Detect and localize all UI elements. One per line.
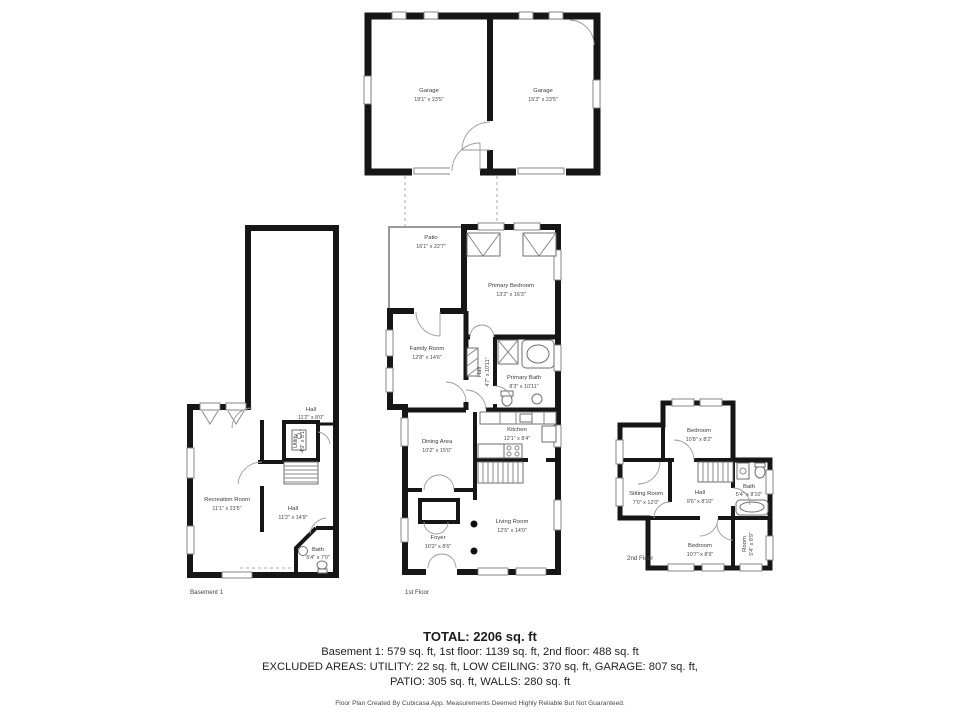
fridge-icon: [542, 426, 556, 442]
basement-title: Basement 1: [190, 589, 224, 596]
toilet-icon: [317, 561, 327, 569]
room-dims: 12'5" x 14'0": [497, 528, 527, 534]
excluded-areas-line2: PATIO: 305 sq. ft, WALLS: 280 sq. ft: [0, 675, 960, 690]
second-floor-stairs: [698, 462, 733, 482]
second-floor-title: 2nd Floor: [627, 555, 653, 562]
area-summary: TOTAL: 2206 sq. ft Basement 1: 579 sq. f…: [0, 629, 960, 707]
room-dims: 12'8" x 14'6": [412, 355, 442, 361]
excluded-areas-line1: EXCLUDED AREAS: UTILITY: 22 sq. ft, LOW …: [0, 660, 960, 675]
room-name: Hall: [306, 407, 316, 413]
stove-icon: [504, 444, 522, 458]
room-dims: 19'1" x 23'5": [414, 97, 444, 103]
disclaimer-text: Floor Plan Created By Cubicasa App. Meas…: [0, 700, 960, 707]
floor-areas: Basement 1: 579 sq. ft, 1st floor: 1139 …: [0, 645, 960, 660]
room-dims: 10'2" x 15'0": [422, 448, 452, 454]
front-entry-opening: [426, 568, 457, 577]
room-name: Utility: [293, 434, 299, 448]
second-floor-plan: Bedroom 10'8" x 8'2" Sitting Room 7'0" x…: [616, 399, 773, 571]
room-dims: 10'7" x 8'9": [687, 552, 714, 558]
room-name: Patio: [424, 235, 438, 241]
room-name: Bedroom: [687, 428, 711, 434]
room-name: Dining Area: [422, 439, 453, 445]
first-floor-title: 1st Floor: [405, 589, 429, 596]
room-dims: 9'6" x 8'10": [687, 499, 714, 505]
room-dims: 10'8" x 8'2": [686, 437, 713, 443]
room-name: Room: [742, 536, 748, 552]
toilet-icon: [755, 466, 765, 478]
total-area: TOTAL: 2206 sq. ft: [0, 629, 960, 645]
room-dims: 5'4" x 8'10": [736, 492, 763, 498]
room-name: Hall: [477, 367, 483, 377]
room-name: Recreation Room: [204, 497, 250, 503]
room-dims: 12'1" x 8'4": [504, 436, 531, 442]
room-name: Bath: [743, 484, 755, 490]
room-name: Garage: [533, 88, 553, 94]
room-name: Kitchen: [507, 427, 527, 433]
room-name: Primary Bedroom: [488, 283, 534, 289]
room-name: Hall: [695, 490, 705, 496]
room-dims: 8'3" x 10'11": [509, 384, 538, 390]
room-dims: 11'2" x 8'0": [298, 415, 324, 421]
room-name: Garage: [419, 88, 439, 94]
room-dims: 11'1" x 23'5": [212, 506, 241, 512]
room-dims: 10'2" x 8'6": [425, 544, 452, 550]
floor-plan-page: Garage 19'1" x 23'5" Garage 15'3" x 23'5…: [0, 0, 960, 720]
first-floor-stairs: [478, 462, 523, 483]
kitchen-sink-icon: [520, 414, 532, 422]
room-name: Primary Bath: [507, 375, 541, 381]
room-name: Foyer: [430, 535, 445, 541]
room-dims: 15'3" x 23'5": [528, 97, 558, 103]
room-dims: 13'2" x 16'3": [496, 292, 526, 298]
room-dims: 16'1" x 22'7": [416, 244, 446, 250]
room-name: Living Room: [496, 519, 529, 525]
floor-plan-drawing: Garage 19'1" x 23'5" Garage 15'3" x 23'5…: [0, 0, 960, 720]
garage-plan: Garage 19'1" x 23'5" Garage 15'3" x 23'5…: [364, 12, 600, 226]
room-name: Sitting Room: [629, 491, 663, 497]
post-dot: [471, 548, 478, 555]
room-name: Bedroom: [688, 543, 712, 549]
room-name: Hall: [288, 506, 298, 512]
room-dims: 5'4" x 8'9": [749, 532, 755, 556]
sink-icon: [737, 463, 749, 479]
foyer-closet: [420, 500, 458, 522]
room-dims: 7'0" x 12'0": [633, 500, 660, 506]
sink-icon: [532, 394, 542, 404]
basement-plan: Hall 11'2" x 8'0" Utility 4'9" x 5'1" Re…: [187, 228, 336, 596]
room-dims: 4'9" x 5'1": [300, 429, 306, 453]
dashed-connectors: [405, 176, 497, 226]
room-dims: 4'7" x 10'11": [485, 357, 491, 386]
room-dims: 5'4" x 7'0": [306, 555, 330, 561]
first-floor-plan: Patio 16'1" x 22'7": [386, 223, 561, 596]
garage-outline: [368, 16, 597, 172]
post-dot: [471, 521, 478, 528]
basement-stairs: [284, 462, 318, 484]
room-name: Family Room: [410, 346, 445, 352]
room-dims: 11'2" x 14'9": [278, 515, 307, 521]
room-name: Bath: [312, 547, 324, 553]
